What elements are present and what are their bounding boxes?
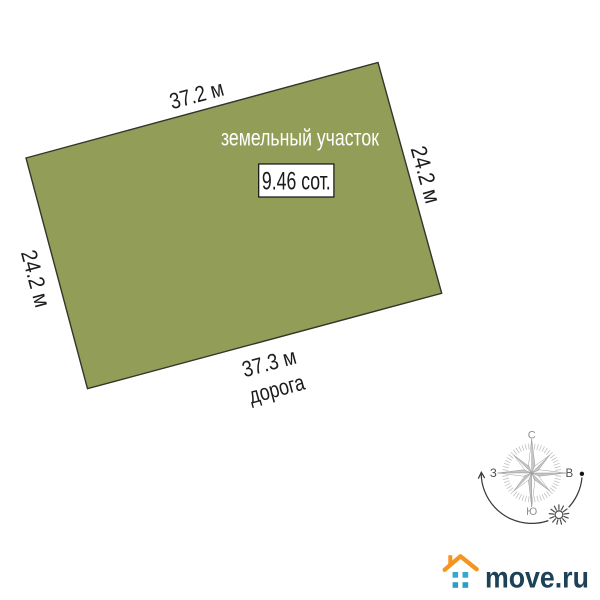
- svg-text:земельный участок: земельный участок: [221, 125, 380, 151]
- svg-text:З: З: [490, 468, 497, 480]
- svg-text:move.ru: move.ru: [485, 561, 589, 593]
- svg-text:В: В: [565, 468, 573, 480]
- svg-text:9.46 сот.: 9.46 сот.: [262, 167, 331, 196]
- svg-text:С: С: [528, 430, 536, 442]
- svg-text:Ю: Ю: [526, 506, 537, 518]
